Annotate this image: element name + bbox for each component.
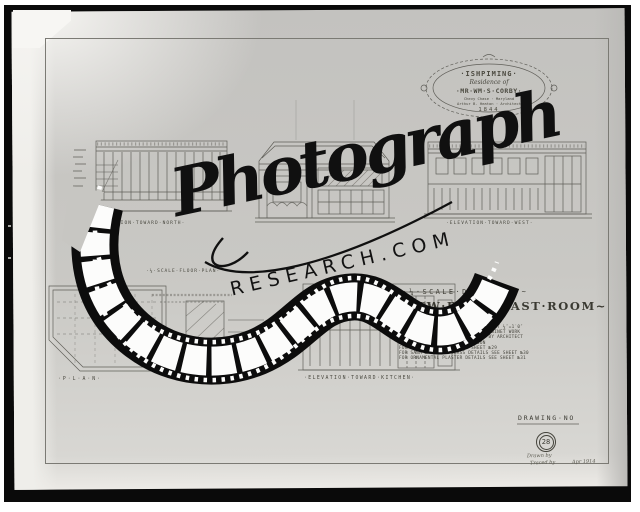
note-line: SAME TO BE FROM WOODS APPROVED BY ARCHIT… [399,335,529,340]
titleblock-heading-small: ~·¼·SCALE·DRAWINGS·~ [396,288,528,296]
label-plan: ·P·L·A·N· [58,377,102,382]
drawing-number: 28 [539,435,554,450]
label-elevation-north: ·ELEVATION·TOWARD·NORTH· [94,221,185,226]
drawing-number-badge: 28 [536,432,556,452]
film-speck [8,257,11,259]
traced-by-note: Traced by [530,460,555,467]
note-line: FOR ORNAMENTAL PLASTER DETAILS SEE SHEET… [399,356,529,361]
titleblock-notes: SCALE OF ALL DRAWINGS ON THIS SHEET ¼″=1… [399,325,529,361]
archival-photo: ·ELEVATION·TOWARD·NORTH· ·ELEVATION·TOWA… [0,0,640,512]
label-floor-plan-scale: ·¼·SCALE·FLOOR·PLAN· [146,269,220,274]
label-elevation-kitchen: ·ELEVATION·TOWARD·KITCHEN· [304,376,416,381]
film-speck [8,225,11,227]
drawn-by-note: Drawn by [527,453,552,460]
drawing-no-label: DRAWING·NO [518,414,575,422]
label-elevation-west: ·ELEVATION·TOWARD·WEST· [446,221,534,226]
date-note: Apr 1914 [572,459,596,466]
titleblock-heading-main: ~NEW·BREAKFAST·ROOM~ [393,299,607,313]
